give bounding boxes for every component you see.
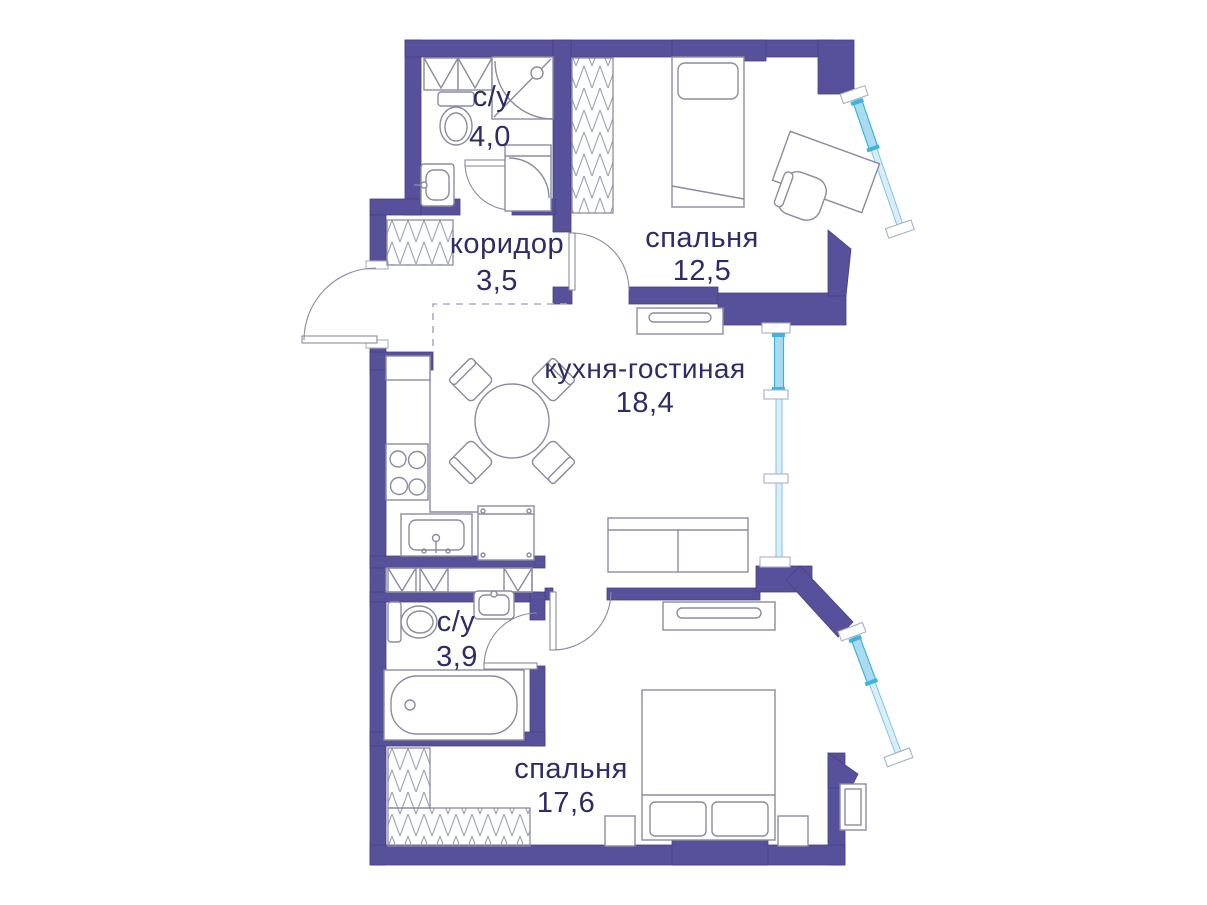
- sink-bathroom-bottom: [474, 591, 514, 619]
- kitchen-sink: [401, 514, 472, 556]
- nightstand-left: [605, 816, 635, 846]
- window-kitchen-living: [760, 323, 790, 567]
- door-bedroom-top: [569, 233, 629, 290]
- sofa: [608, 518, 748, 572]
- floor-plan: с/у 4,0 коридор 3,5 спальня 12,5 кухня-г…: [0, 0, 1207, 905]
- label-bathroom-bottom-area: 3,9: [436, 641, 478, 673]
- label-bathroom-top-area: 4,0: [469, 121, 511, 153]
- stove: [386, 444, 428, 500]
- tv-stand-living: [637, 308, 723, 334]
- bathtub: [384, 670, 524, 740]
- wardrobe-bedroom-top: [572, 58, 613, 213]
- label-bedroom-bottom-area: 17,6: [537, 787, 595, 819]
- label-bathroom-top-name: с/у: [473, 81, 512, 113]
- entrance-door: [302, 261, 388, 348]
- toilet-bottom: [388, 602, 437, 642]
- window-bedroom-bottom: [837, 622, 913, 766]
- label-bedroom-top-name: спальня: [645, 222, 759, 254]
- zone-divider: [433, 304, 567, 352]
- single-bed: [672, 57, 744, 207]
- nightstand-right: [778, 816, 808, 846]
- washing-machine: [505, 145, 551, 211]
- label-bedroom-bottom-name: спальня: [514, 753, 628, 785]
- fridge: [478, 506, 534, 560]
- double-bed: [642, 690, 775, 840]
- door-bedroom-bottom: [550, 592, 611, 650]
- door-bathroom-bottom: [484, 613, 537, 669]
- wardrobe-bedroom-bottom-tall: [388, 748, 430, 808]
- label-corridor-area: 3,5: [476, 265, 518, 297]
- cabinet-row-hall: [386, 568, 532, 592]
- radiator: [840, 784, 866, 830]
- tv-stand-bedroom: [663, 602, 775, 630]
- label-corridor-name: коридор: [450, 228, 564, 260]
- corridor-closet: [387, 220, 453, 265]
- label-bathroom-bottom-name: с/у: [437, 606, 476, 638]
- label-kitchen-living-name: кухня-гостиная: [544, 353, 745, 384]
- label-kitchen-living-area: 18,4: [616, 387, 674, 419]
- label-bedroom-top-area: 12,5: [673, 255, 731, 287]
- wardrobe-bedroom-bottom-wide: [388, 808, 530, 846]
- floor-plan-canvas: с/у 4,0 коридор 3,5 спальня 12,5 кухня-г…: [0, 0, 1207, 905]
